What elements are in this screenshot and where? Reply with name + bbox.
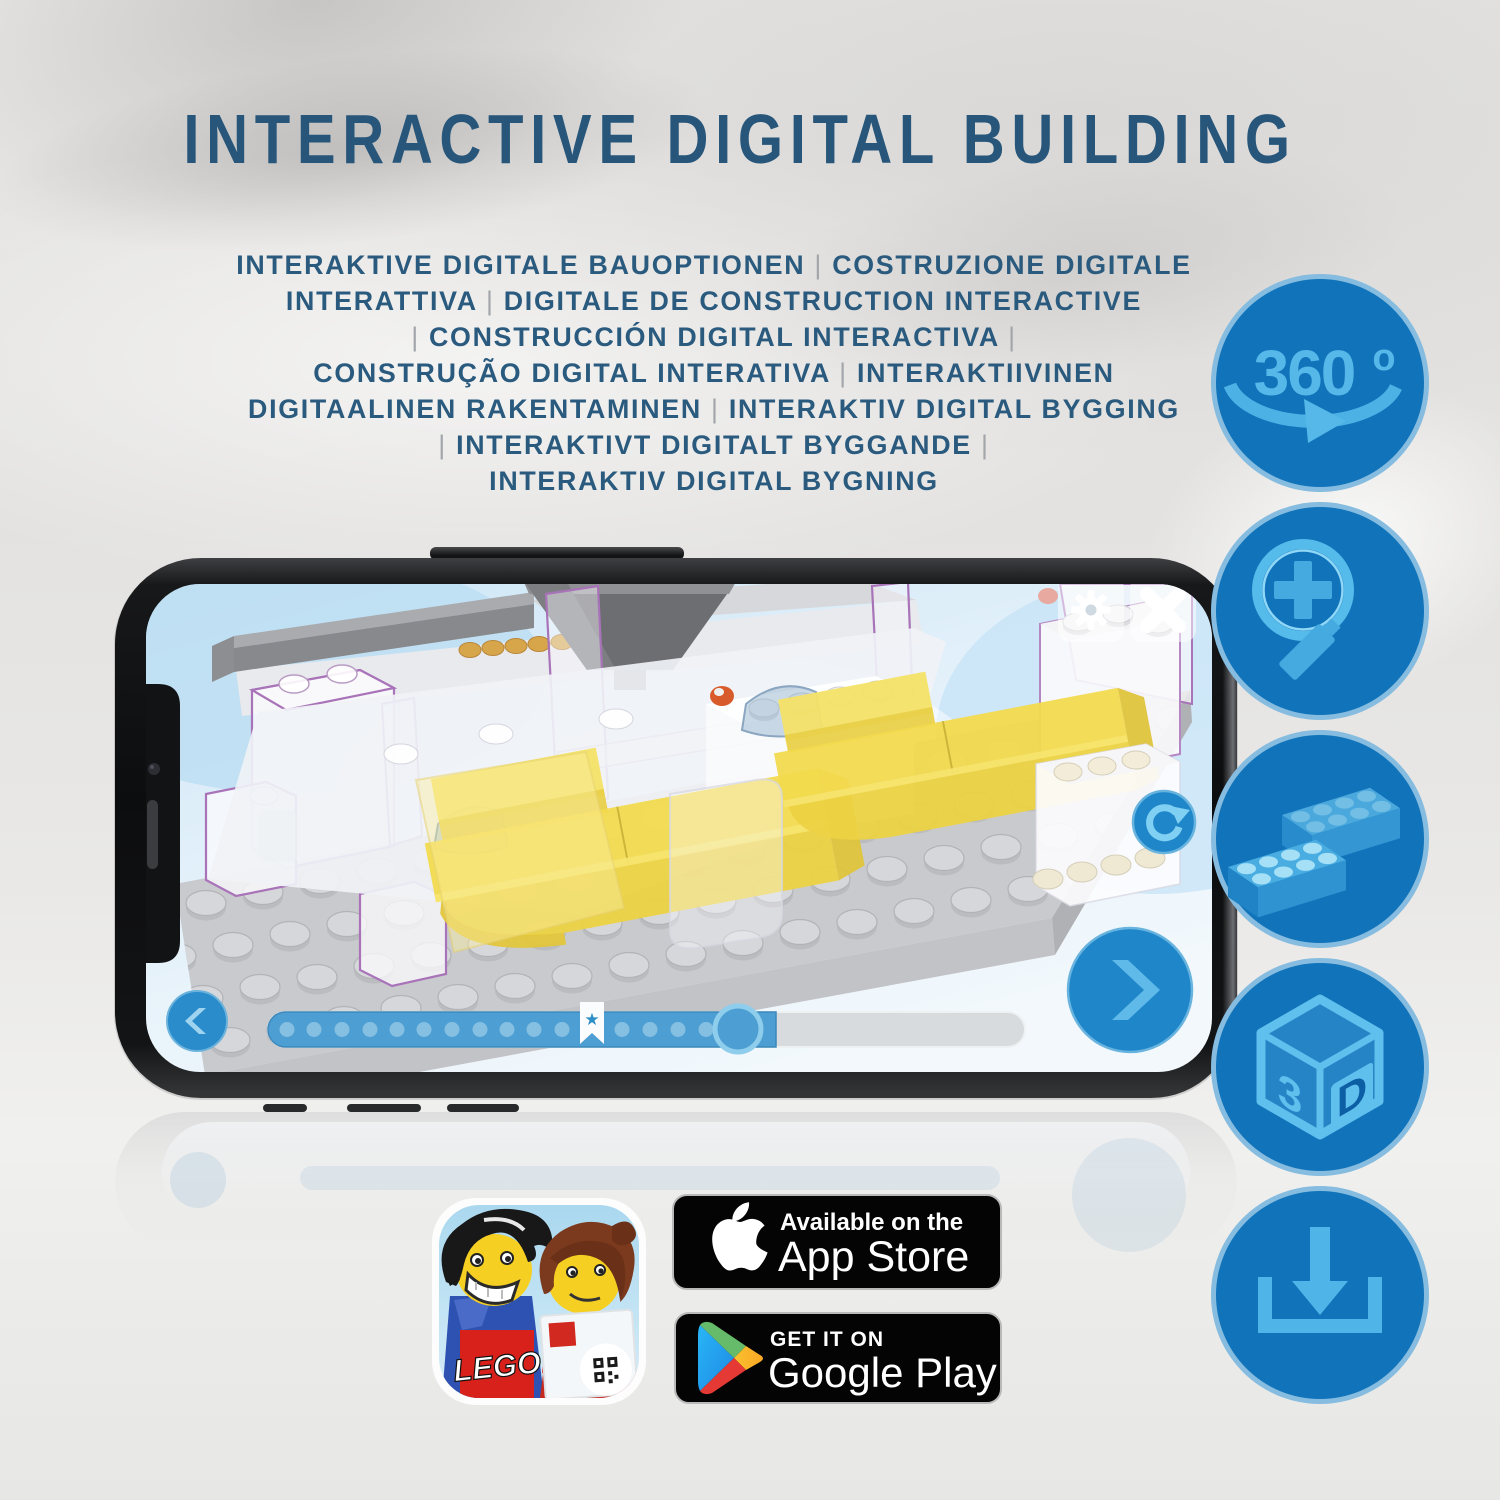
svg-text:Google Play: Google Play <box>768 1349 997 1396</box>
svg-text:360: 360 <box>1254 337 1355 409</box>
svg-text:App Store: App Store <box>778 1233 969 1281</box>
svg-text:o: o <box>1372 337 1395 379</box>
svg-text:★: ★ <box>584 1010 599 1029</box>
svg-text:GET IT ON: GET IT ON <box>770 1328 884 1351</box>
svg-text:Available on the: Available on the <box>780 1209 963 1236</box>
